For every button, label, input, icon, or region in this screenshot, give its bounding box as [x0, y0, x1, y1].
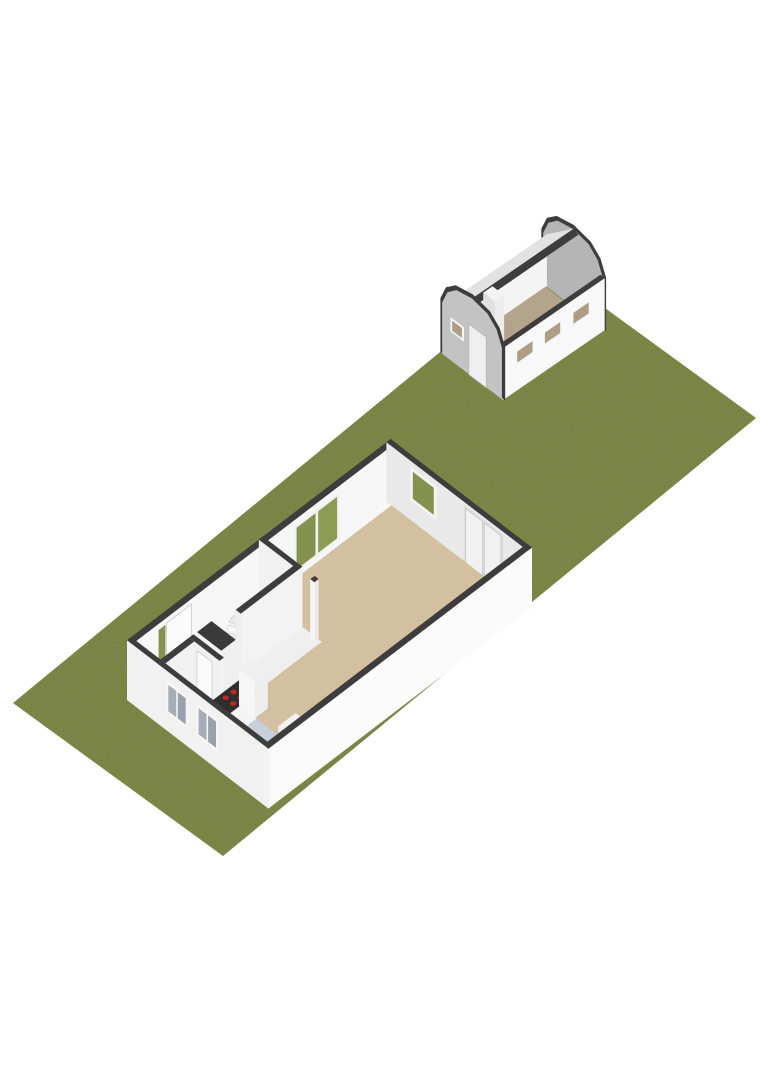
hall-doorway-post-face: [314, 579, 318, 642]
house-wall-sw-face: [268, 746, 272, 809]
staircase-side-wall-face: [236, 610, 241, 674]
hob-burners-dot: [230, 690, 236, 695]
floorplan-viewer: [0, 0, 768, 1086]
hob-burners-dot: [223, 695, 229, 700]
hob-burners-dot: [230, 701, 236, 706]
floorplan-3d-scene-canvas[interactable]: [0, 0, 768, 1086]
hall-doorway-post-face: [310, 579, 314, 642]
